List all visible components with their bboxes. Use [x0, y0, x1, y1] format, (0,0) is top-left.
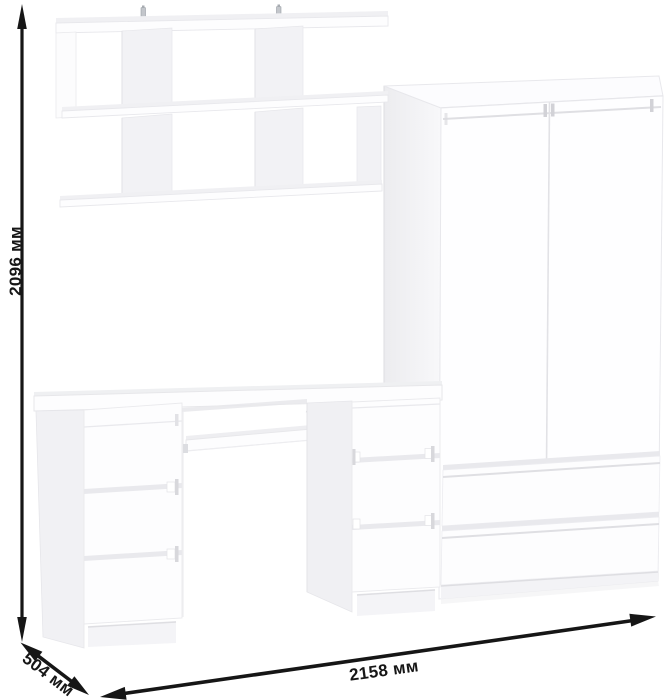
- shelf-right-panel: [357, 106, 381, 189]
- desk-left-side-panel: [36, 410, 84, 648]
- shelf-mount-bracket: [141, 6, 146, 18]
- desk-left-pedestal: [84, 403, 182, 624]
- desk-right-pedestal: [352, 398, 440, 592]
- furniture-illustration: [0, 0, 665, 700]
- wall-shelf: [56, 5, 388, 208]
- width-arrow: [100, 614, 656, 700]
- wardrobe-side-panel: [384, 86, 441, 430]
- height-dimension-label: 2096 мм: [6, 221, 26, 301]
- shelf-left-panel: [56, 32, 76, 118]
- height-arrow: [17, 4, 27, 642]
- desk-right-side-panel: [307, 401, 352, 612]
- computer-desk: [34, 381, 442, 648]
- furniture-product-diagram: 2096 мм 2158 мм 504 мм: [0, 0, 665, 700]
